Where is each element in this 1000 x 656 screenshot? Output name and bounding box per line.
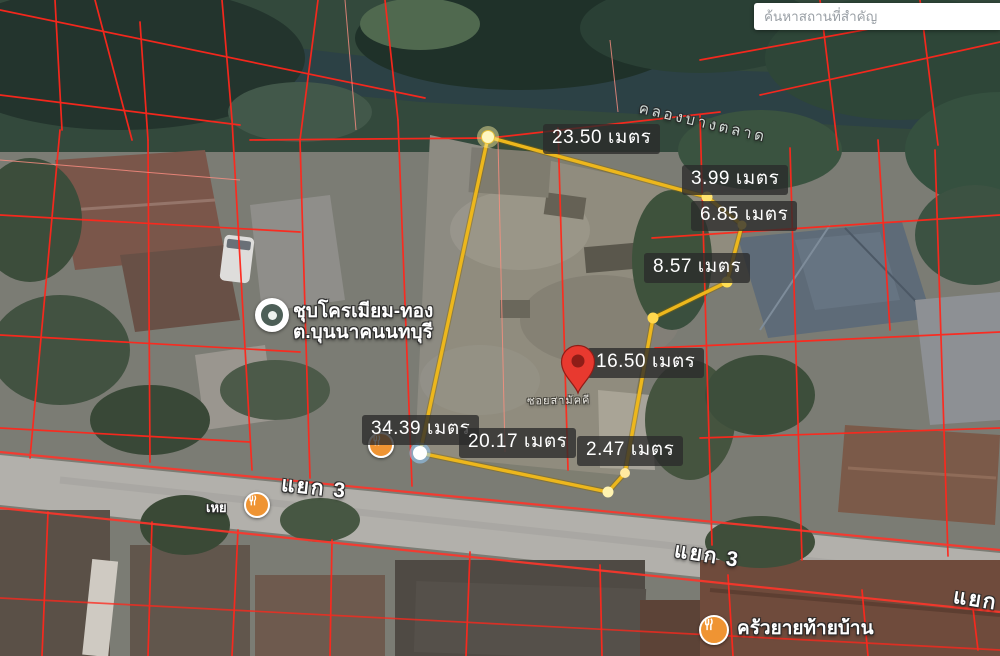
measurement-label-top: 23.50 เมตร <box>543 124 660 154</box>
restaurant-icon[interactable] <box>699 615 729 645</box>
fork-knife-glyph <box>246 494 259 507</box>
place-label-restaurant[interactable]: ครัวยายท้ายบ้าน <box>737 618 874 639</box>
measurement-label-bottom: 20.17 เมตร <box>459 428 576 458</box>
plot-overlay <box>0 0 1000 656</box>
search-input[interactable] <box>754 3 1000 30</box>
food-shop-icon[interactable] <box>244 492 270 518</box>
place-label-plating-shop[interactable]: ชุบโครเมียม-ทอง ต.บุนนาคนนทบุรี <box>293 301 433 343</box>
measurement-label-se: 2.47 เมตร <box>577 436 683 466</box>
place-label-line2: ต.บุนนาคนนทบุรี <box>293 322 433 343</box>
small-shop-label[interactable]: เหย <box>206 497 227 518</box>
measurement-label-ne-2: 6.85 เมตร <box>691 201 797 231</box>
fork-knife-glyph <box>701 617 716 632</box>
place-label-line1: ชุบโครเมียม-ทอง <box>293 301 433 322</box>
measurement-label-ne-1: 3.99 เมตร <box>682 165 788 195</box>
measurement-label-right-side: 16.50 เมตร <box>587 348 704 378</box>
business-icon-ring <box>261 304 283 326</box>
business-icon-core <box>268 311 277 320</box>
search-bar <box>754 3 1000 30</box>
measurement-label-east: 8.57 เมตร <box>644 253 750 283</box>
business-circle-icon[interactable] <box>255 298 289 332</box>
map-canvas[interactable]: 23.50 เมตร 3.99 เมตร 6.85 เมตร 8.57 เมตร… <box>0 0 1000 656</box>
